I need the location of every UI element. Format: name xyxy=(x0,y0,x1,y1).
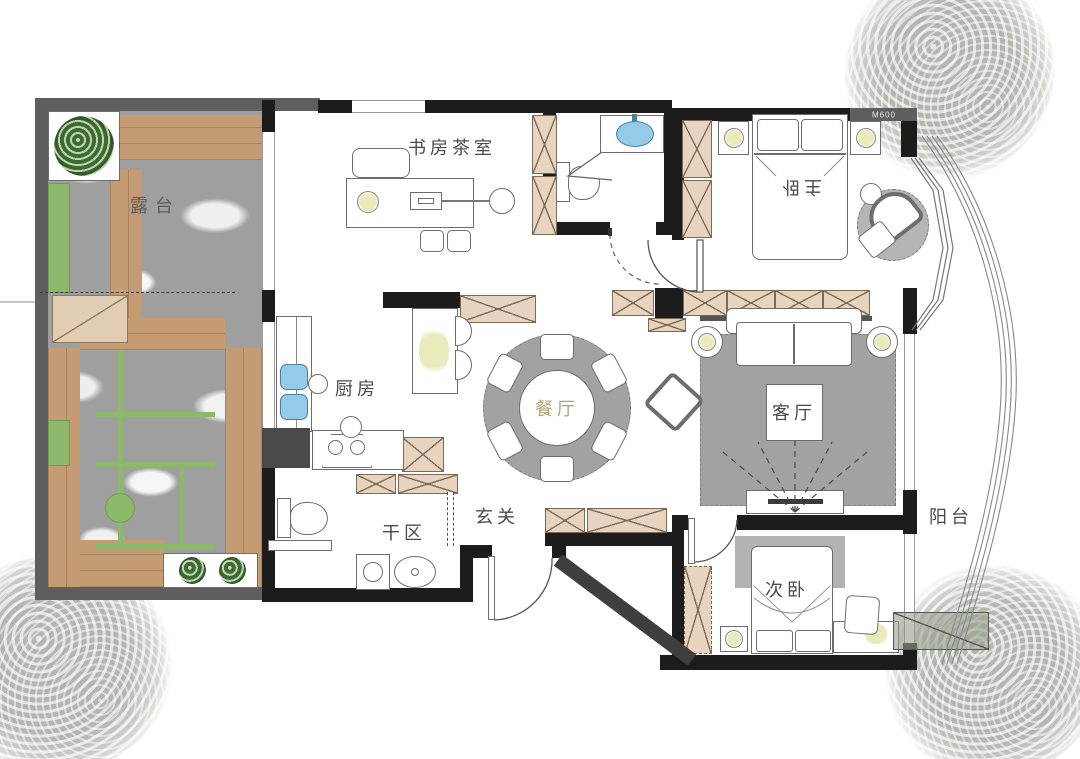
room-label-dry-area: 干区 xyxy=(382,519,426,545)
floor-plan: M600 xyxy=(0,0,1080,759)
room-label-second-bedroom: 次卧 xyxy=(765,576,809,602)
room-label-living: 客厅 xyxy=(772,399,816,425)
room-label-master: 主卧 xyxy=(778,175,822,201)
room-label-terrace: 露台 xyxy=(130,192,180,218)
room-label-balcony: 阳台 xyxy=(929,503,973,529)
room-label-study: 书房茶室 xyxy=(408,134,496,160)
overlay-lines xyxy=(0,0,1080,759)
room-label-kitchen: 厨房 xyxy=(335,375,379,401)
room-label-dining: 餐厅 xyxy=(535,395,579,421)
room-label-foyer: 玄关 xyxy=(475,503,519,529)
